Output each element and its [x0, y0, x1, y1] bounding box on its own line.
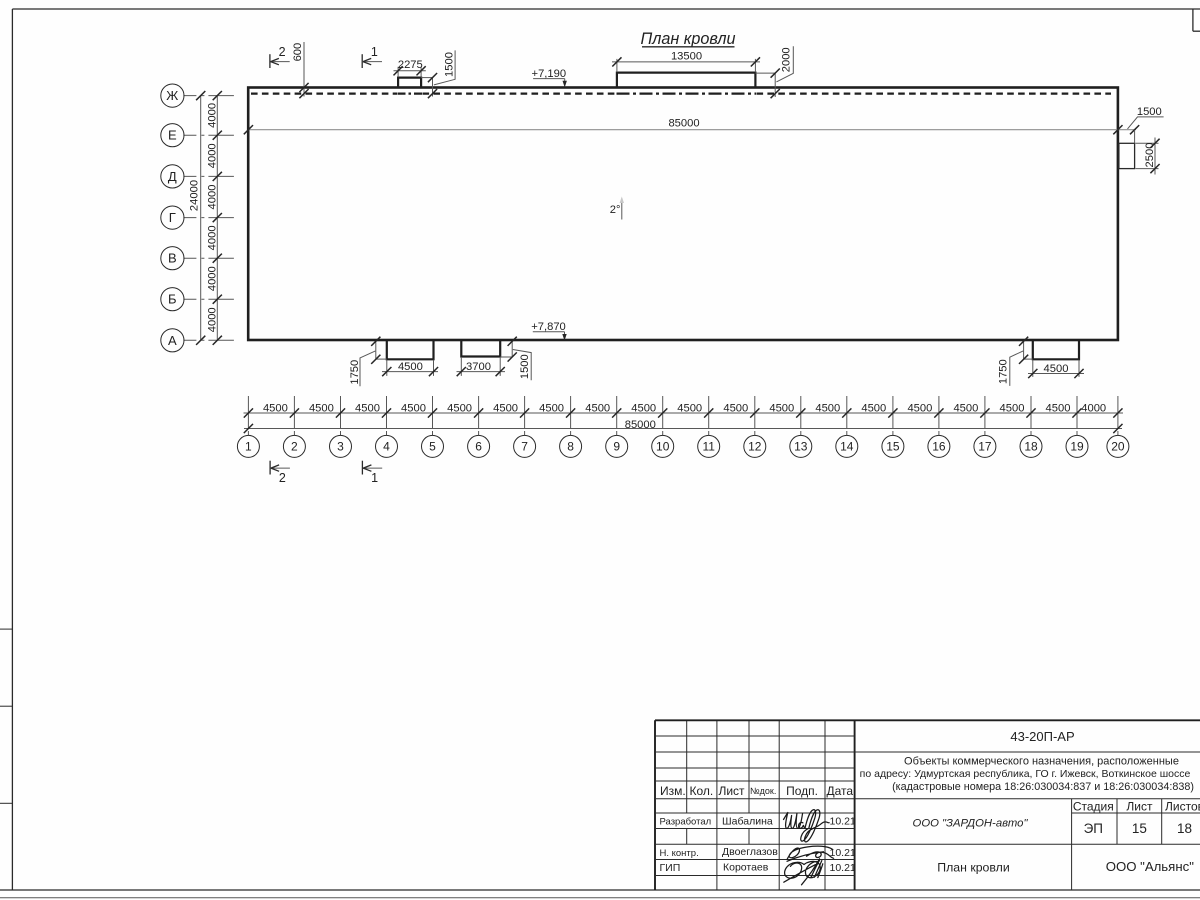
svg-text:4500: 4500 — [398, 361, 423, 373]
svg-text:9: 9 — [613, 440, 620, 454]
svg-text:4000: 4000 — [207, 307, 219, 332]
svg-text:2: 2 — [291, 440, 298, 454]
svg-text:20: 20 — [1111, 440, 1125, 454]
svg-text:7: 7 — [521, 440, 528, 454]
svg-text:4500: 4500 — [1044, 363, 1069, 375]
svg-text:№док.: №док. — [750, 786, 776, 796]
svg-text:4500: 4500 — [309, 402, 334, 414]
svg-text:2: 2 — [279, 45, 286, 59]
svg-text:Лист: Лист — [1126, 799, 1153, 813]
svg-text:Дата: Дата — [827, 784, 854, 798]
svg-text:15: 15 — [1132, 821, 1147, 836]
svg-text:(кадастровые номера 18:26:0300: (кадастровые номера 18:26:030034:837 и 1… — [892, 781, 1194, 793]
svg-text:18: 18 — [1024, 440, 1038, 454]
svg-text:10.21: 10.21 — [830, 847, 856, 859]
svg-text:4500: 4500 — [1000, 402, 1025, 414]
svg-text:1: 1 — [245, 440, 252, 454]
svg-text:Кол.: Кол. — [690, 784, 714, 798]
svg-text:ЭП: ЭП — [1084, 821, 1103, 836]
svg-text:ООО "ЗАРДОН-авто": ООО "ЗАРДОН-авто" — [913, 817, 1029, 829]
svg-text:14: 14 — [840, 440, 854, 454]
svg-text:4000: 4000 — [207, 185, 219, 210]
svg-text:16: 16 — [932, 440, 946, 454]
svg-text:Г: Г — [169, 210, 176, 225]
svg-text:4500: 4500 — [861, 402, 886, 414]
svg-text:4500: 4500 — [263, 402, 288, 414]
svg-text:19: 19 — [1070, 440, 1084, 454]
svg-text:4000: 4000 — [207, 225, 219, 250]
svg-text:2°: 2° — [610, 204, 621, 216]
svg-text:4500: 4500 — [493, 402, 518, 414]
svg-text:4500: 4500 — [355, 402, 380, 414]
svg-text:11: 11 — [702, 440, 715, 454]
svg-text:1750: 1750 — [349, 360, 361, 385]
svg-text:8: 8 — [567, 440, 574, 454]
svg-text:13: 13 — [794, 440, 808, 454]
svg-text:3700: 3700 — [466, 361, 491, 373]
svg-text:ГИП: ГИП — [660, 862, 681, 874]
svg-text:4500: 4500 — [401, 402, 426, 414]
svg-text:4500: 4500 — [677, 402, 702, 414]
svg-text:43-20П-АР: 43-20П-АР — [1010, 729, 1074, 744]
svg-text:1: 1 — [371, 45, 378, 59]
svg-text:В: В — [168, 251, 177, 266]
svg-text:10.21: 10.21 — [830, 816, 856, 828]
svg-text:Коротаев: Коротаев — [723, 861, 769, 873]
svg-text:4500: 4500 — [585, 402, 610, 414]
svg-text:17: 17 — [978, 440, 992, 454]
svg-text:5: 5 — [429, 440, 436, 454]
svg-text:1500: 1500 — [1137, 106, 1162, 118]
svg-text:2000: 2000 — [781, 47, 793, 72]
svg-text:4500: 4500 — [907, 402, 932, 414]
svg-text:2275: 2275 — [398, 59, 423, 71]
svg-text:4500: 4500 — [447, 402, 472, 414]
svg-text:2500: 2500 — [1144, 143, 1156, 168]
svg-text:План кровли: План кровли — [937, 860, 1010, 874]
svg-text:4000: 4000 — [207, 266, 219, 291]
svg-text:Ж: Ж — [166, 88, 178, 103]
svg-text:4000: 4000 — [207, 143, 219, 168]
svg-text:А: А — [168, 333, 177, 348]
svg-text:4: 4 — [383, 440, 390, 454]
svg-text:1500: 1500 — [519, 354, 531, 379]
svg-text:Изм.: Изм. — [660, 784, 686, 798]
svg-text:План кровли: План кровли — [641, 30, 736, 48]
svg-text:10.21: 10.21 — [830, 862, 856, 874]
svg-text:18: 18 — [1177, 821, 1192, 836]
svg-text:4500: 4500 — [953, 402, 978, 414]
svg-text:13500: 13500 — [671, 50, 702, 62]
svg-text:Н. контр.: Н. контр. — [660, 848, 699, 859]
svg-text:Лист: Лист — [718, 784, 745, 798]
svg-text:Е: Е — [168, 128, 177, 143]
svg-text:Листов: Листов — [1165, 799, 1200, 813]
svg-text:85000: 85000 — [625, 419, 656, 431]
svg-text:85000: 85000 — [668, 117, 699, 129]
svg-text:2: 2 — [279, 471, 286, 485]
svg-text:Объекты коммерческого назначен: Объекты коммерческого назначения, распол… — [904, 755, 1179, 767]
svg-text:Шабалина: Шабалина — [722, 815, 773, 827]
svg-text:6: 6 — [475, 440, 482, 454]
svg-text:4000: 4000 — [207, 103, 219, 128]
svg-text:Б: Б — [168, 292, 177, 307]
svg-text:по адресу: Удмуртская республи: по адресу: Удмуртская республика, ГО г. … — [860, 768, 1191, 780]
svg-text:+7,870: +7,870 — [531, 321, 566, 333]
svg-text:24000: 24000 — [189, 180, 201, 211]
svg-text:Д: Д — [168, 169, 177, 184]
svg-text:Разработал: Разработал — [660, 816, 712, 827]
svg-text:10: 10 — [656, 440, 670, 454]
svg-text:1: 1 — [371, 471, 378, 485]
svg-text:1750: 1750 — [997, 359, 1009, 384]
svg-text:4500: 4500 — [723, 402, 748, 414]
svg-text:ООО "Альянс": ООО "Альянс" — [1106, 859, 1194, 874]
svg-text:Подп.: Подп. — [786, 784, 818, 798]
svg-text:4500: 4500 — [815, 402, 840, 414]
svg-text:12: 12 — [748, 440, 762, 454]
svg-text:4500: 4500 — [1046, 402, 1071, 414]
svg-text:Стадия: Стадия — [1073, 799, 1114, 813]
svg-text:4000: 4000 — [1081, 402, 1106, 414]
svg-text:4500: 4500 — [539, 402, 564, 414]
svg-text:Двоеглазов: Двоеглазов — [722, 846, 778, 858]
svg-text:4500: 4500 — [769, 402, 794, 414]
svg-text:15: 15 — [886, 440, 900, 454]
svg-text:1500: 1500 — [444, 52, 456, 77]
svg-text:3: 3 — [337, 440, 344, 454]
svg-text:4500: 4500 — [631, 402, 656, 414]
svg-text:600: 600 — [292, 43, 304, 62]
